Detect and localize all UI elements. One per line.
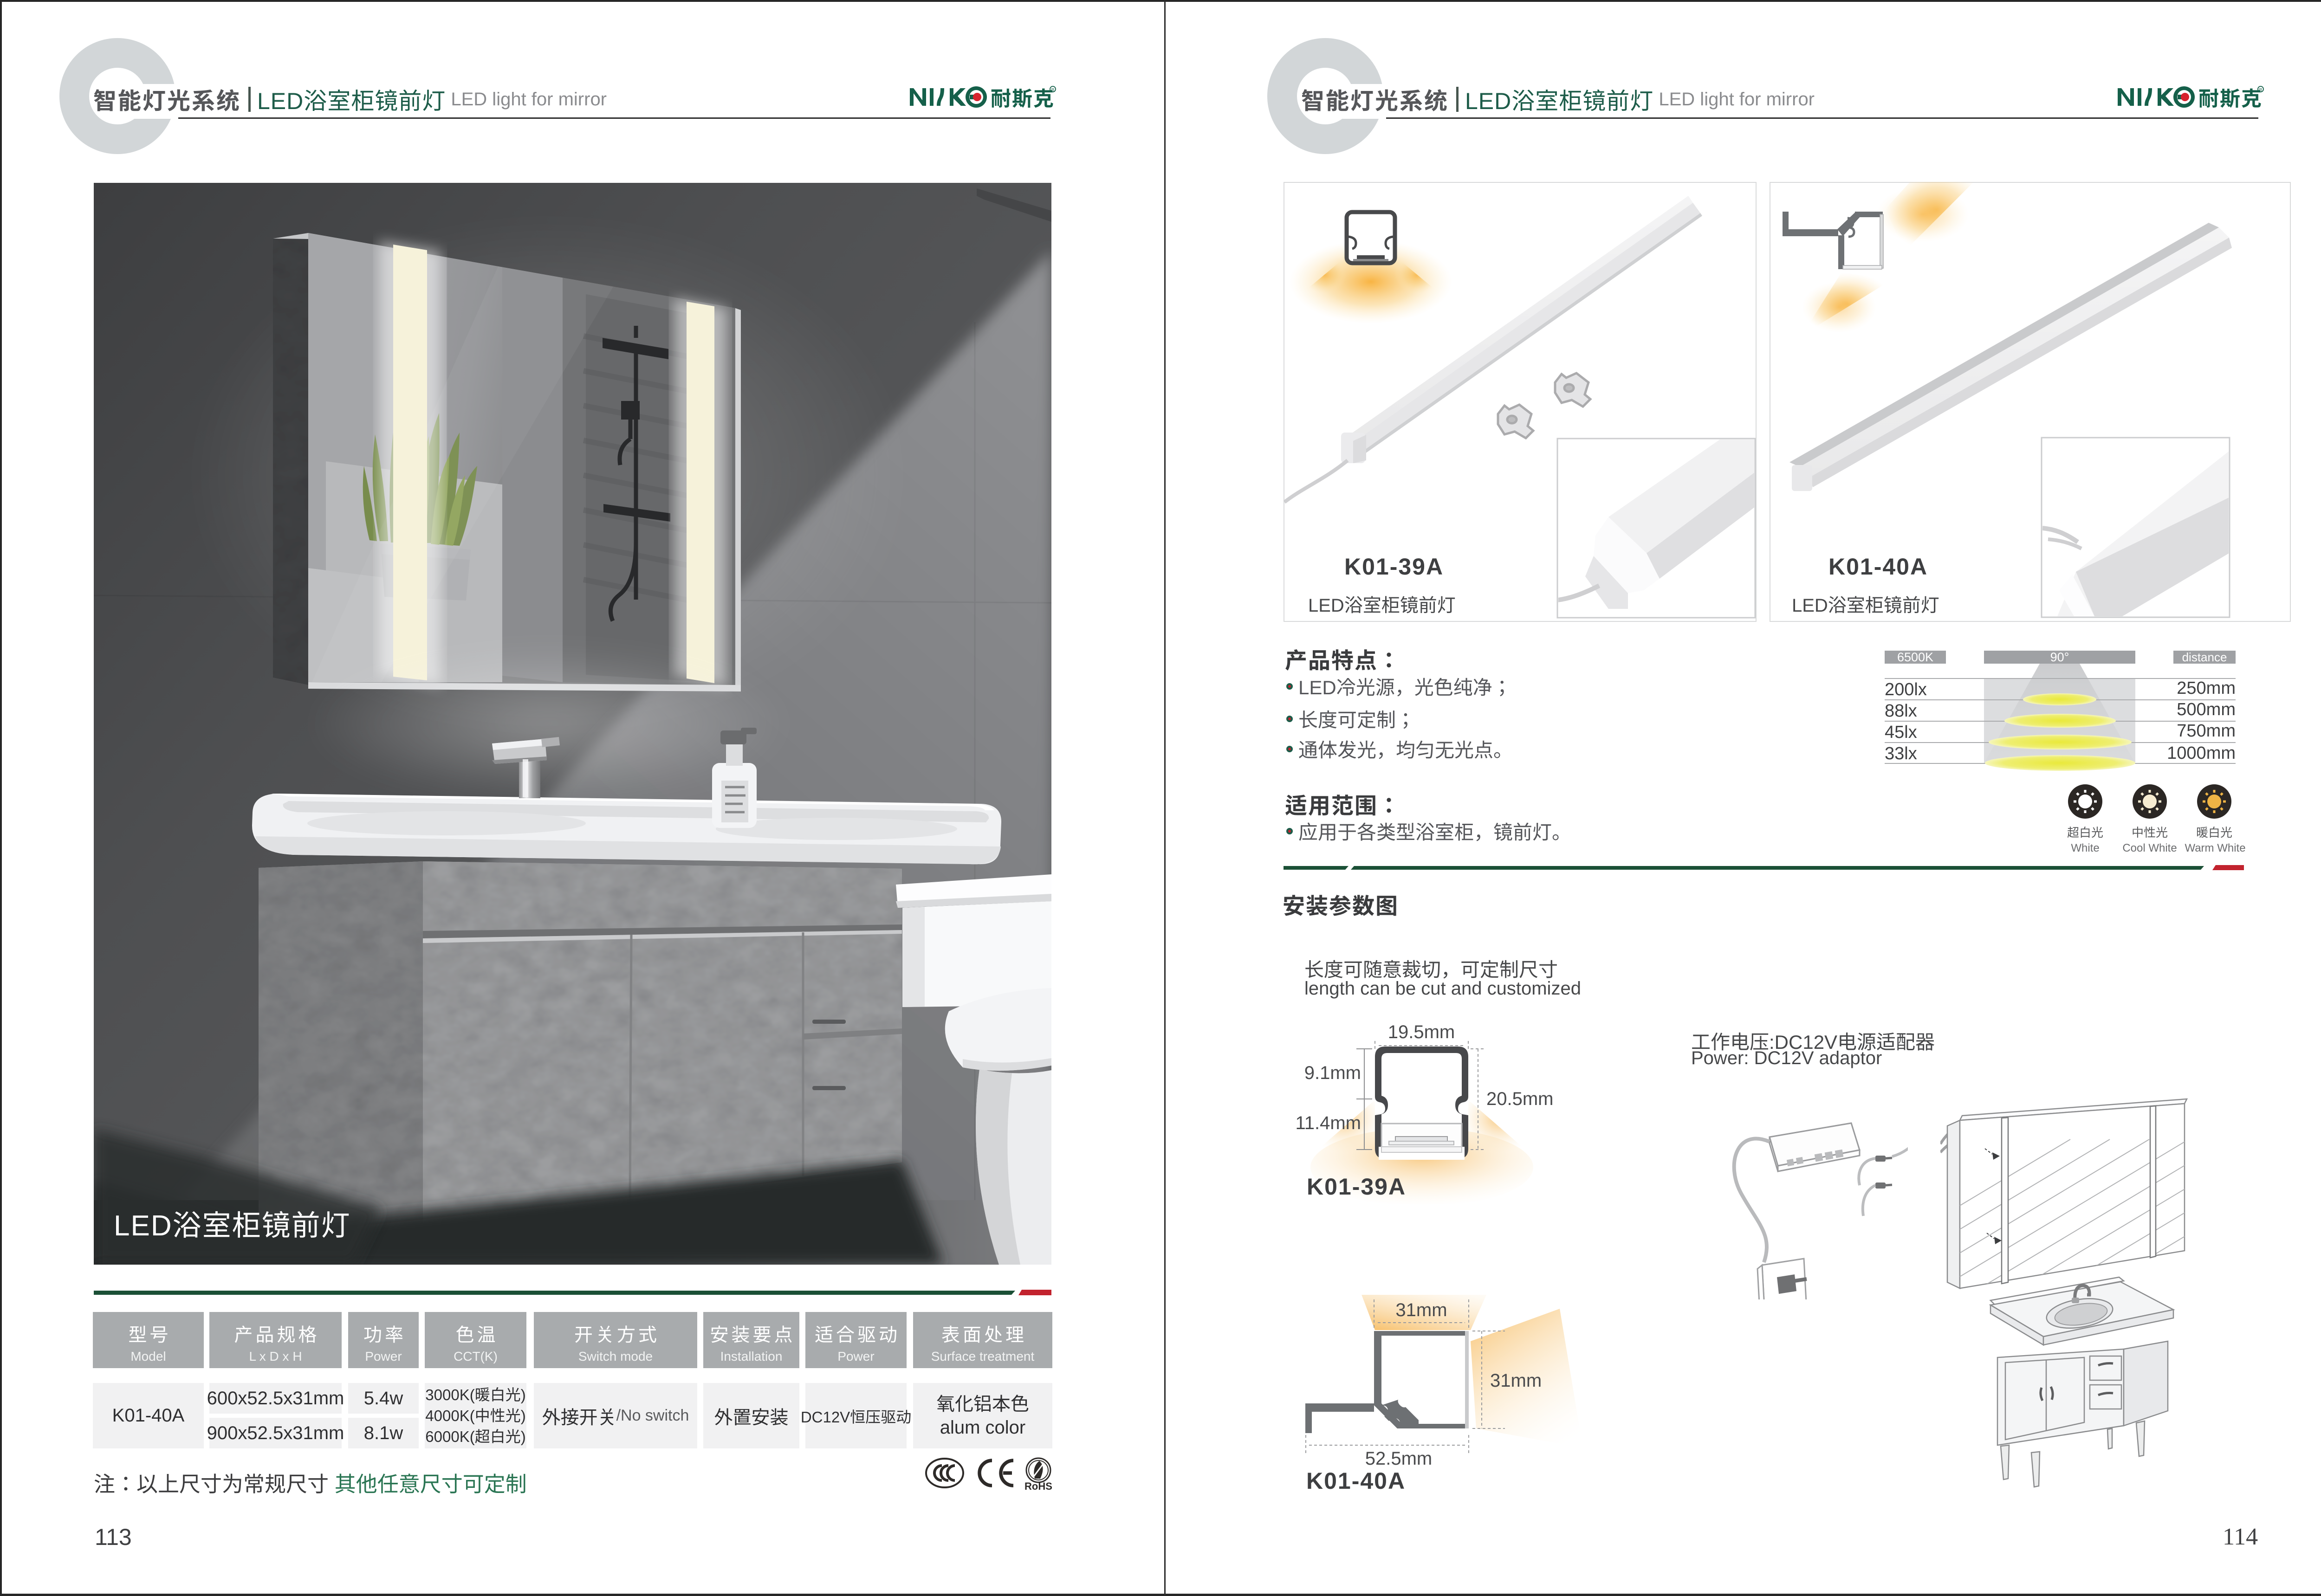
svg-text:19.5mm: 19.5mm [1388,1022,1455,1042]
svg-text:88lx: 88lx [1885,701,1917,721]
svg-text:6500K: 6500K [1897,650,1933,664]
svg-text:52.5mm: 52.5mm [1365,1448,1433,1469]
svg-text:超白光: 超白光 [2067,826,2103,840]
svg-text:中性光: 中性光 [2132,826,2168,840]
svg-text:20.5mm: 20.5mm [1486,1089,1554,1109]
svg-text:45lx: 45lx [1885,723,1917,742]
svg-text:LED浴室柜镜前灯: LED浴室柜镜前灯 [114,1210,351,1242]
svg-text:200lx: 200lx [1885,680,1927,699]
svg-text:White: White [2071,842,2099,854]
svg-text:Cool White: Cool White [2122,842,2177,854]
svg-text:Warm White: Warm White [2185,842,2245,854]
svg-text:R: R [2259,88,2263,92]
svg-text:R: R [1051,88,1055,92]
svg-text:9.1mm: 9.1mm [1304,1063,1361,1083]
svg-text:31mm: 31mm [1395,1300,1447,1320]
svg-text:distance: distance [2182,650,2227,664]
svg-text:33lx: 33lx [1885,744,1917,763]
svg-text:耐斯克: 耐斯克 [2198,84,2263,110]
svg-text:耐斯克: 耐斯克 [991,84,1055,110]
svg-text:1000mm: 1000mm [2167,743,2236,763]
svg-text:90°: 90° [2050,650,2069,664]
svg-text:31mm: 31mm [1490,1370,1542,1391]
svg-text:750mm: 750mm [2177,721,2236,741]
svg-text:暖白光: 暖白光 [2196,826,2232,840]
svg-text:RoHS: RoHS [1024,1480,1052,1492]
svg-text:11.4mm: 11.4mm [1295,1113,1361,1133]
svg-text:250mm: 250mm [2177,678,2236,698]
svg-text:500mm: 500mm [2177,700,2236,719]
